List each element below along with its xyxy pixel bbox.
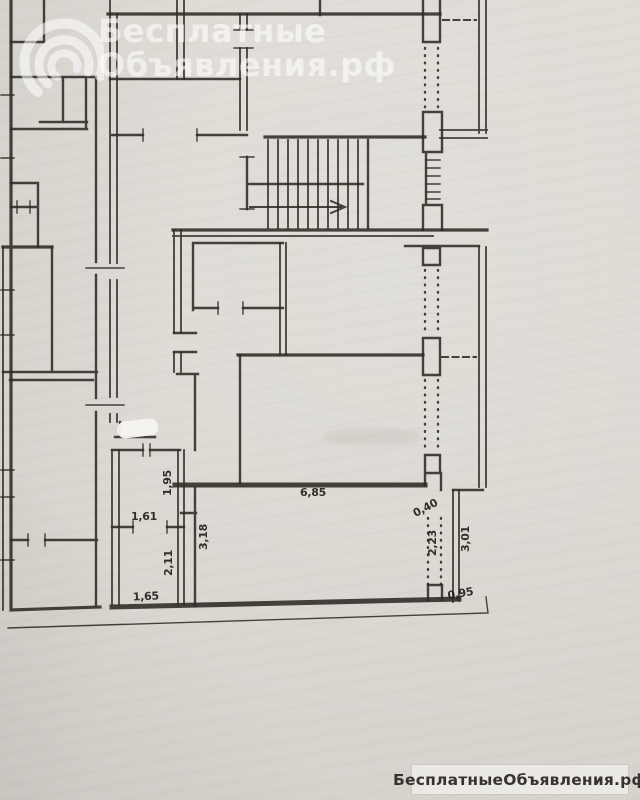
photo-vignette [0, 0, 640, 800]
photo-of-floor-plan: 1,95 6,85 1,61 3,18 2,11 1,65 0,40 2,23 … [0, 0, 640, 800]
